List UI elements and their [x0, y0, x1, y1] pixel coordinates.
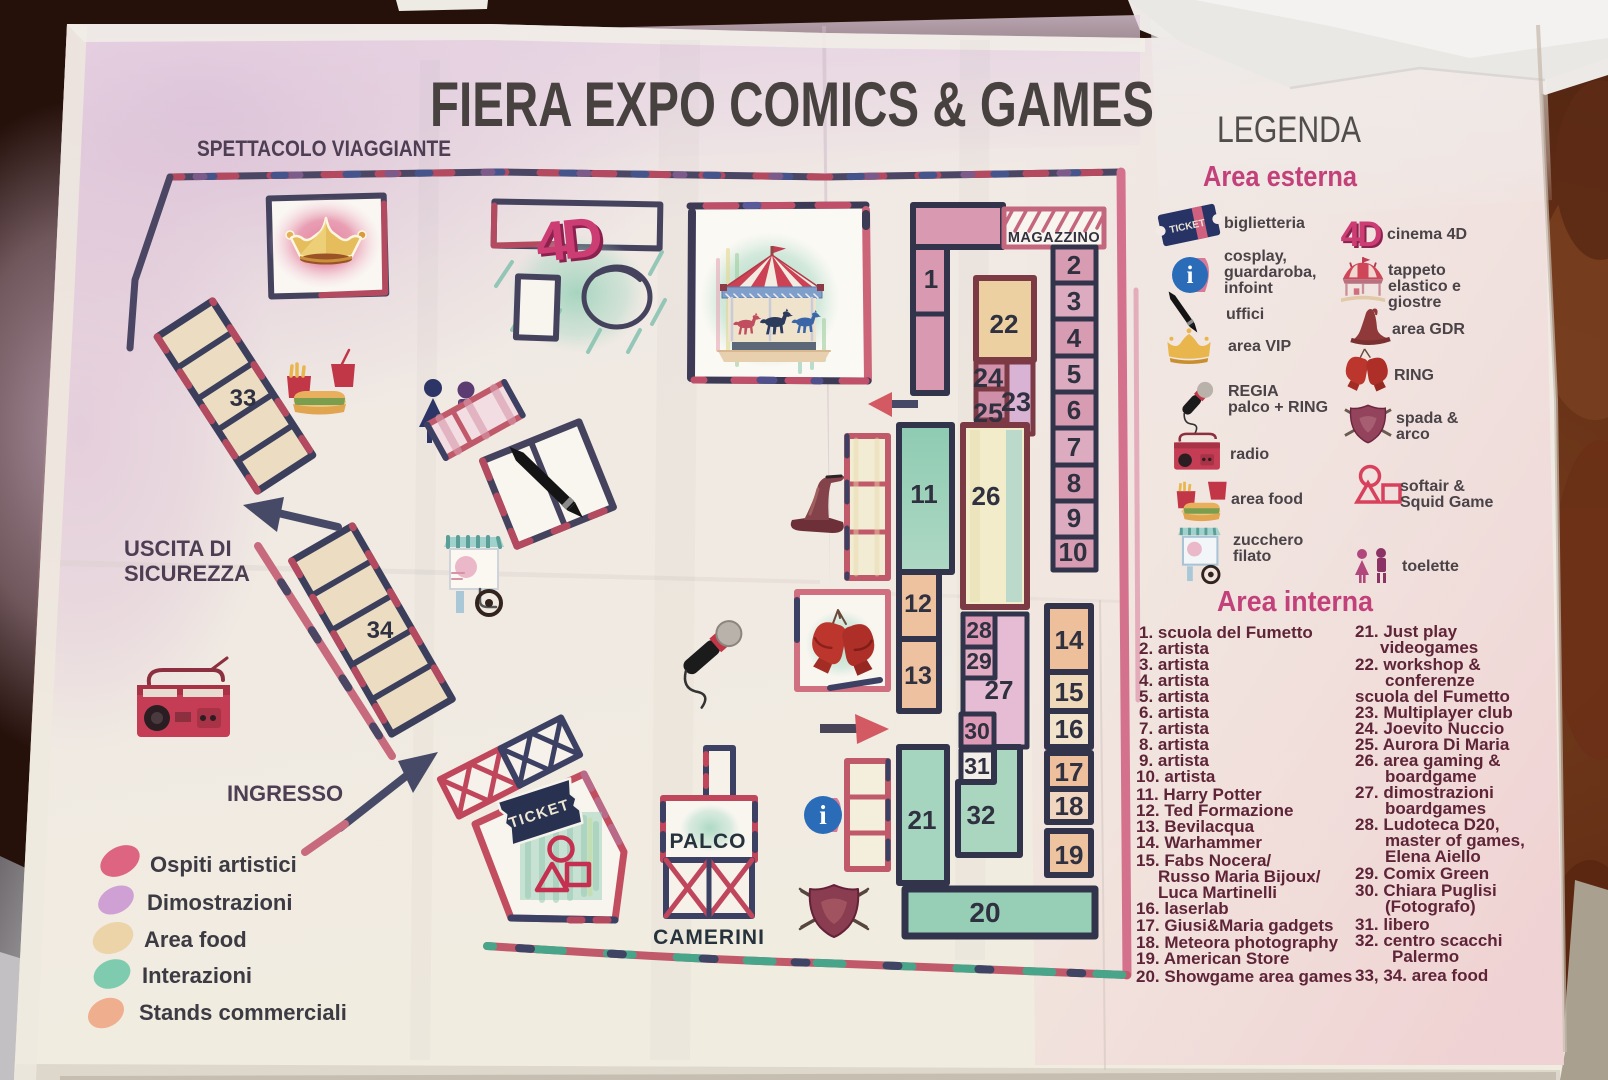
- svg-text:10: 10: [1059, 537, 1088, 567]
- svg-text:filato: filato: [1233, 548, 1271, 565]
- svg-text:area GDR: area GDR: [1392, 321, 1465, 338]
- svg-text:Area food: Area food: [144, 927, 247, 952]
- svg-text:toelette: toelette: [1402, 558, 1459, 575]
- svg-text:4D: 4D: [533, 204, 604, 273]
- svg-text:31: 31: [964, 753, 990, 779]
- svg-text:guardaroba,: guardaroba,: [1224, 264, 1316, 281]
- svg-text:7: 7: [1067, 432, 1081, 462]
- svg-text:Area esterna: Area esterna: [1203, 161, 1358, 193]
- svg-text:SICUREZZA: SICUREZZA: [124, 561, 250, 586]
- svg-text:INGRESSO: INGRESSO: [227, 781, 343, 806]
- svg-text:Squid Game: Squid Game: [1400, 494, 1493, 511]
- svg-text:21: 21: [908, 805, 937, 835]
- svg-text:elastico e: elastico e: [1388, 278, 1461, 295]
- svg-text:10. artista: 10. artista: [1136, 767, 1216, 786]
- svg-text:softair &: softair &: [1400, 478, 1465, 495]
- svg-text:17: 17: [1055, 757, 1084, 787]
- svg-text:11: 11: [910, 479, 938, 509]
- svg-text:29: 29: [966, 648, 992, 674]
- svg-text:33: 33: [230, 385, 257, 412]
- svg-text:Ospiti artistici: Ospiti artistici: [150, 852, 297, 877]
- svg-text:Dimostrazioni: Dimostrazioni: [147, 890, 292, 915]
- svg-text:REGIA: REGIA: [1228, 383, 1279, 400]
- svg-text:20: 20: [969, 897, 1000, 928]
- svg-text:Area interna: Area interna: [1217, 586, 1374, 618]
- svg-text:Interazioni: Interazioni: [142, 963, 252, 988]
- svg-text:FIERA EXPO COMICS & GAMES: FIERA EXPO COMICS & GAMES: [430, 70, 1154, 140]
- svg-text:32: 32: [967, 800, 996, 830]
- svg-text:uffici: uffici: [1226, 306, 1264, 323]
- svg-text:14: 14: [1055, 625, 1084, 655]
- svg-text:cinema 4D: cinema 4D: [1387, 226, 1467, 243]
- svg-text:SPETTACOLO VIAGGIANTE: SPETTACOLO VIAGGIANTE: [197, 136, 451, 161]
- svg-text:Stands commerciali: Stands commerciali: [139, 1000, 347, 1025]
- svg-text:arco: arco: [1396, 426, 1430, 443]
- svg-text:19. American Store: 19. American Store: [1136, 949, 1289, 968]
- svg-text:giostre: giostre: [1388, 294, 1441, 311]
- svg-text:5: 5: [1067, 359, 1081, 389]
- svg-text:(Fotografo): (Fotografo): [1385, 897, 1476, 916]
- svg-text:3: 3: [1067, 286, 1081, 316]
- svg-text:4: 4: [1067, 323, 1082, 353]
- svg-text:4D: 4D: [1341, 215, 1381, 254]
- svg-text:LEGENDA: LEGENDA: [1217, 109, 1361, 150]
- svg-text:infoint: infoint: [1224, 280, 1274, 297]
- svg-text:34: 34: [367, 617, 394, 644]
- svg-text:area VIP: area VIP: [1228, 338, 1291, 355]
- svg-text:20. Showgame area games: 20. Showgame area games: [1136, 967, 1352, 986]
- svg-text:30: 30: [964, 718, 990, 744]
- svg-text:16: 16: [1055, 714, 1084, 744]
- svg-text:CAMERINI: CAMERINI: [653, 926, 765, 949]
- svg-text:biglietteria: biglietteria: [1224, 215, 1305, 232]
- svg-text:15: 15: [1055, 677, 1084, 707]
- svg-text:8: 8: [1067, 468, 1081, 498]
- svg-text:26: 26: [972, 481, 1001, 511]
- svg-text:palco + RING: palco + RING: [1228, 399, 1328, 416]
- svg-text:2: 2: [1067, 250, 1081, 280]
- svg-text:1: 1: [924, 264, 938, 294]
- svg-text:19: 19: [1055, 840, 1084, 870]
- svg-text:i: i: [1187, 262, 1194, 289]
- svg-text:22: 22: [990, 309, 1019, 339]
- svg-text:tappeto: tappeto: [1388, 262, 1446, 279]
- svg-text:MAGAZZINO: MAGAZZINO: [1008, 230, 1100, 246]
- svg-text:24: 24: [973, 363, 1003, 393]
- svg-text:28: 28: [966, 617, 992, 643]
- svg-text:23: 23: [1001, 387, 1031, 417]
- svg-text:cosplay,: cosplay,: [1224, 248, 1287, 265]
- svg-text:RING: RING: [1394, 367, 1434, 384]
- svg-text:12: 12: [904, 590, 932, 618]
- svg-text:PALCO: PALCO: [670, 830, 747, 853]
- svg-text:Palermo: Palermo: [1392, 947, 1459, 966]
- svg-text:9: 9: [1067, 503, 1081, 533]
- svg-text:6: 6: [1067, 395, 1081, 425]
- svg-text:i: i: [819, 800, 827, 830]
- svg-text:18: 18: [1055, 791, 1084, 821]
- svg-text:33, 34. area food: 33, 34. area food: [1355, 966, 1488, 985]
- svg-text:area food: area food: [1231, 491, 1303, 508]
- svg-text:zucchero: zucchero: [1233, 532, 1303, 549]
- svg-text:spada &: spada &: [1396, 410, 1459, 427]
- svg-text:14. Warhammer: 14. Warhammer: [1136, 833, 1262, 852]
- svg-text:USCITA DI: USCITA DI: [124, 536, 232, 561]
- svg-text:radio: radio: [1230, 446, 1269, 463]
- svg-text:13: 13: [904, 662, 932, 690]
